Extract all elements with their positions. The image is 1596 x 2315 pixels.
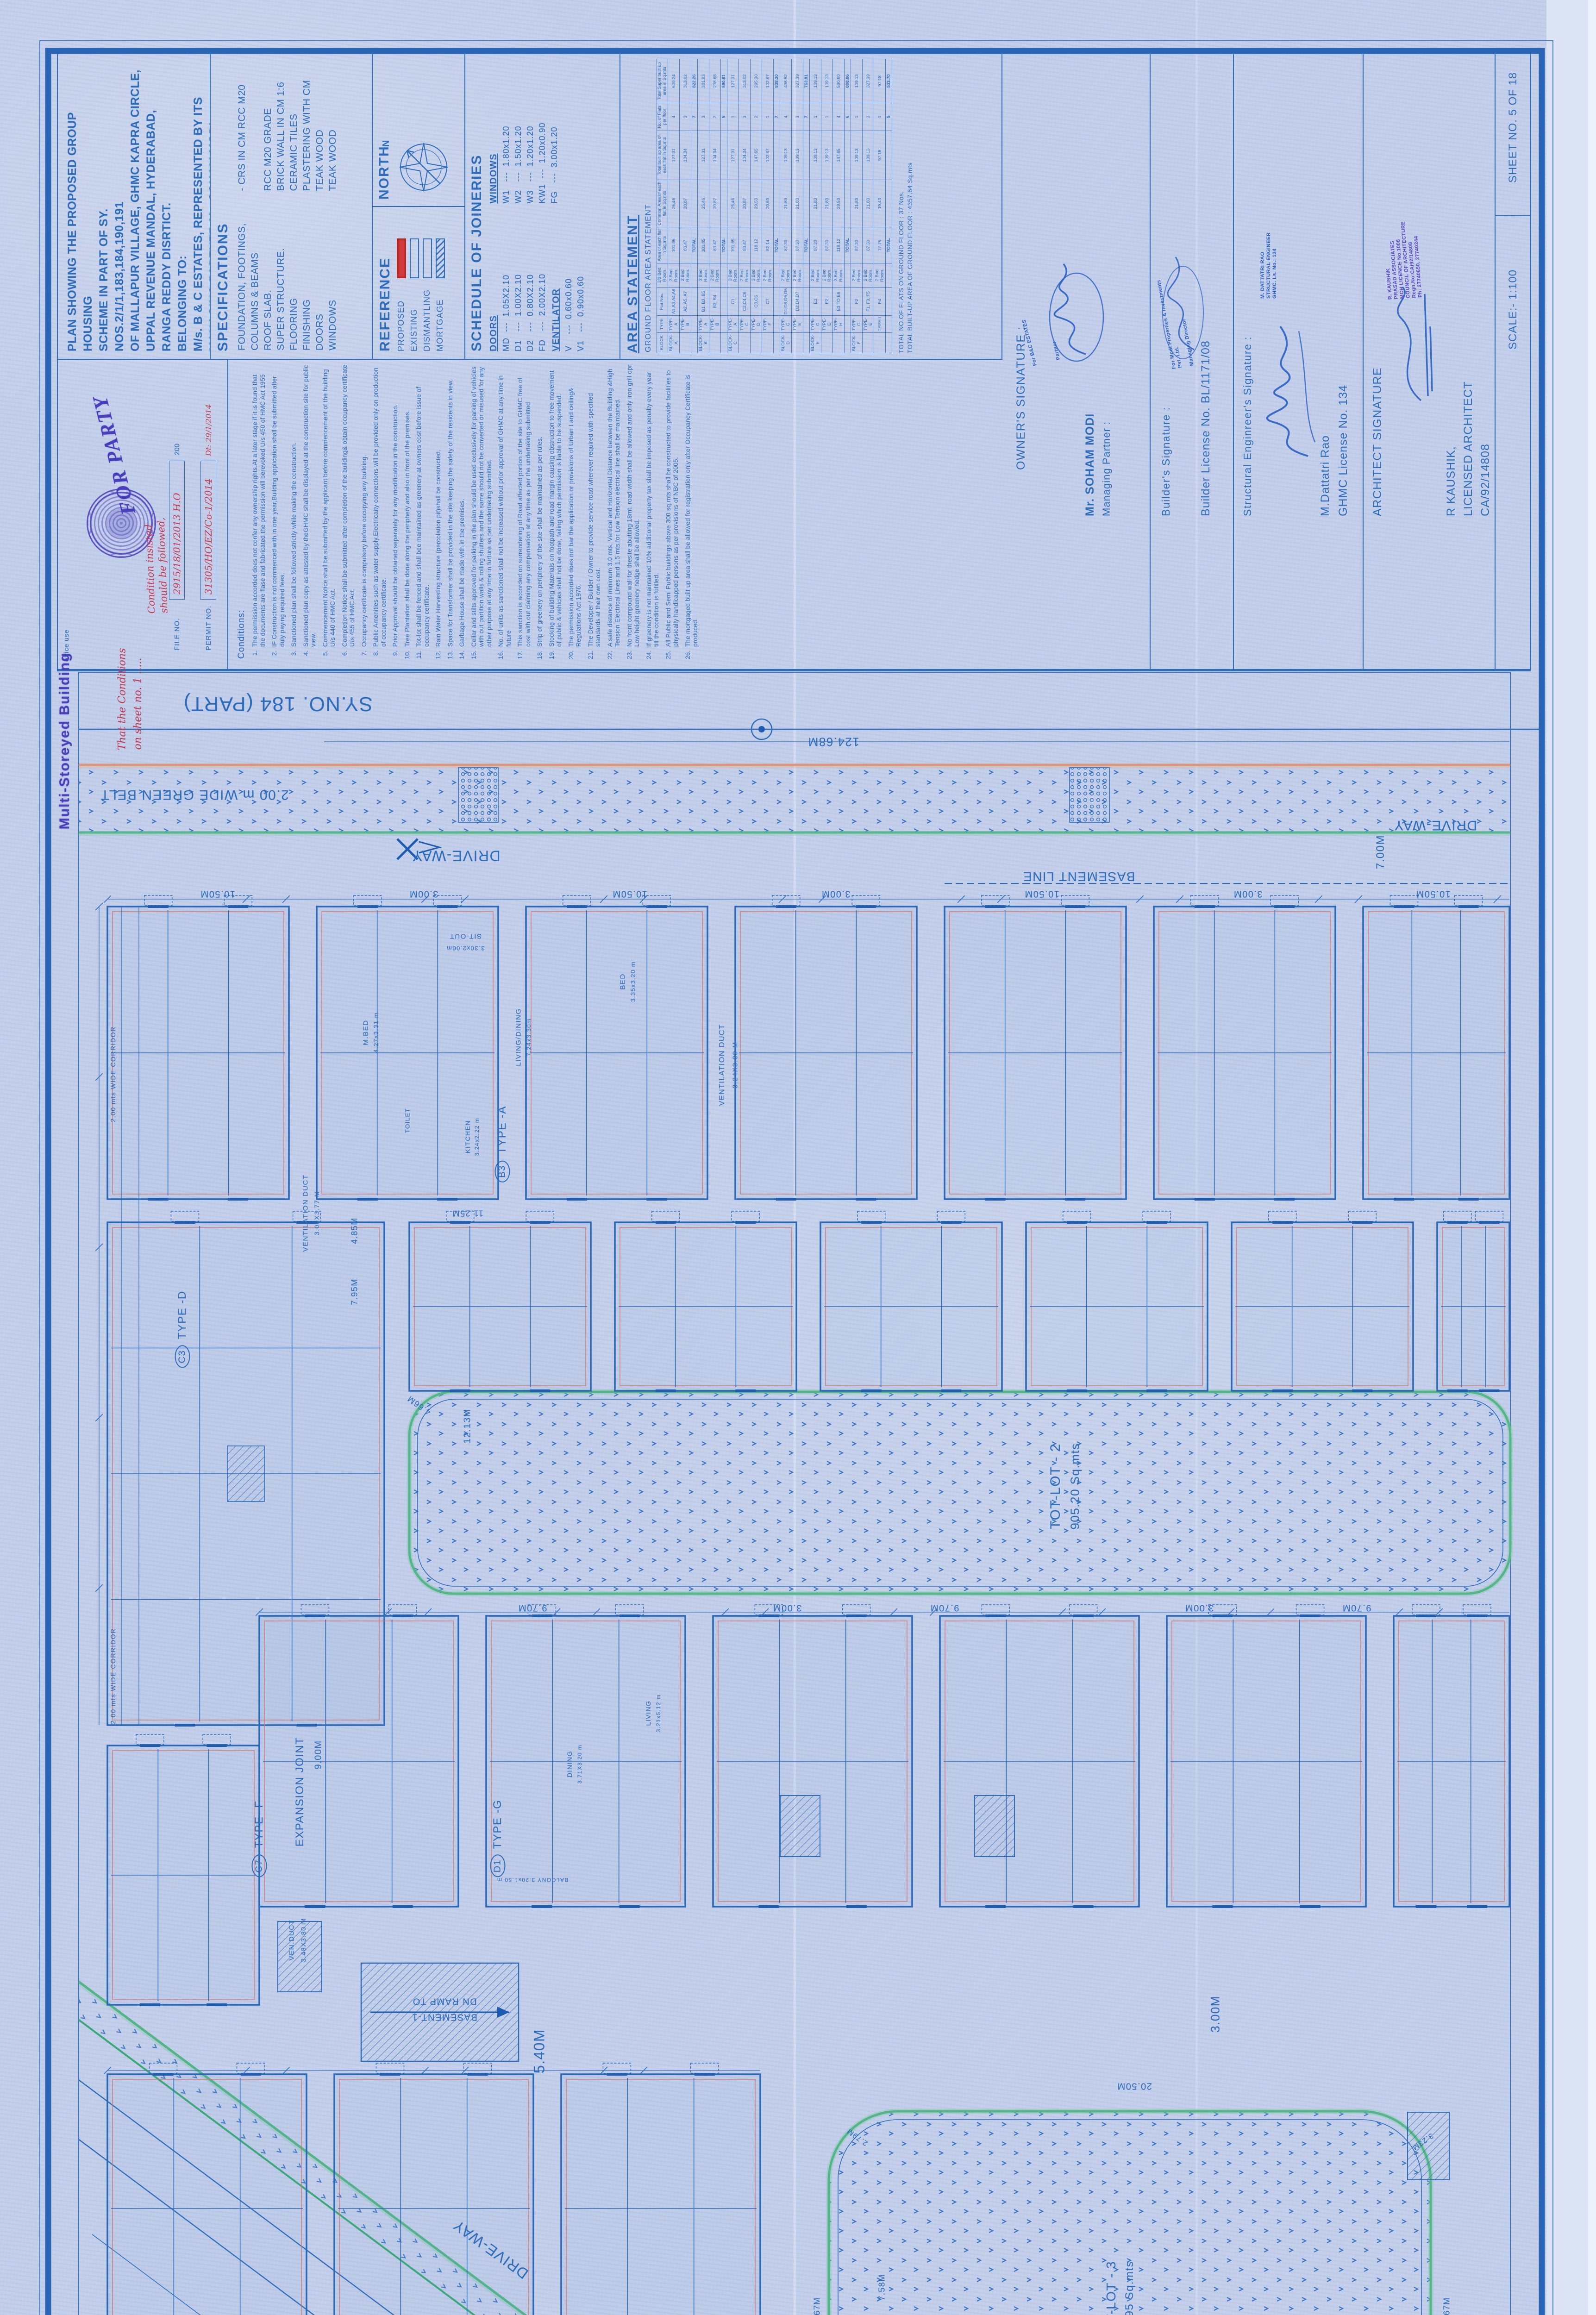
condition-number: 5. <box>322 647 337 663</box>
area-note: TOTAL BUILT-UP AREA OF GROUND FLOOR : 43… <box>906 56 914 353</box>
joinery-item: D1 --- 1.00X2.10 <box>513 204 523 352</box>
condition-text: Strip of greenery on periphery of the si… <box>536 437 544 647</box>
condition-item: 12.Rain Water Harvesting structure (perc… <box>435 364 443 663</box>
file-no-print: 200 <box>173 444 181 455</box>
area-cell: 102.67 <box>762 131 774 180</box>
specifications-panel: SPECIFICATIONS FOUNDATION, FOOTINGS,- CR… <box>211 52 373 359</box>
condition-number: 12. <box>435 647 443 663</box>
area-cell: TYPE-E <box>792 316 803 333</box>
area-cell: 109.13 <box>810 59 821 103</box>
area-cell: E1 <box>810 287 821 316</box>
area-cell: 3 <box>680 103 691 131</box>
area-cell <box>774 131 780 180</box>
condition-text: A safe distance of minimum 3.0 mts. Vert… <box>607 364 622 647</box>
tot-lot-3 <box>829 2111 1431 2315</box>
title-line: OF MALLAPUR VILLAGE, GHMC KAPRA CIRCLE, <box>127 56 143 351</box>
area-cell: 3 <box>863 103 874 131</box>
stamp-line: GHMC. Ls. No.: 134 <box>1272 232 1278 299</box>
apartment-block <box>713 1605 912 1907</box>
area-cell: TOTAL <box>845 227 851 263</box>
area-cell: 3 <box>739 103 751 131</box>
apartment-block <box>1232 1211 1413 1391</box>
condition-item: 5.Commencement Notice shall be submitted… <box>322 364 337 663</box>
permit-no-label: PERMIT NO. <box>205 600 213 651</box>
area-row: TOTAL5590.61 <box>721 59 727 353</box>
condition-number: 17. <box>517 647 532 663</box>
area-cell: D2,D4,D7 <box>792 287 803 316</box>
area-cell: 2 Bed Room. <box>863 263 874 287</box>
area-col-header: Flat Nos. <box>657 287 668 316</box>
apartment-block <box>107 895 289 1199</box>
area-col-header: Total Super built up area in Sq.mts <box>657 59 668 103</box>
north-cell: NORTH N <box>373 52 464 207</box>
area-cell: 822.26 <box>691 59 698 103</box>
area-cell: TYPE-D <box>751 316 762 333</box>
joinery-item: D2 --- 0.80X2.10 <box>526 204 535 352</box>
condition-number: 19. <box>548 647 563 663</box>
conditions-cell: Conditions: 1.The permission accorded do… <box>228 360 1002 669</box>
conditions-list: 1.The permission accorded does not confe… <box>251 364 700 663</box>
area-cell: 7 <box>803 103 810 131</box>
condition-number: 4. <box>302 647 318 663</box>
condition-text: Sanctioned plan copy as attested by theG… <box>302 364 318 647</box>
area-cell: 1 <box>874 103 886 131</box>
condition-text: The Developer / Builder / Owner to provi… <box>587 364 602 647</box>
area-cell <box>803 131 810 180</box>
apartment-block <box>526 895 707 1199</box>
spec-item: SUPER STRUCTURE. <box>275 192 288 351</box>
area-cell <box>886 333 892 353</box>
area-cell: TOTAL <box>803 227 810 263</box>
area-cell: 2 Bed Room. <box>874 263 886 287</box>
spec-row: DOORSTEAK WOOD <box>313 62 326 351</box>
owner-signature-cell: OWNER'S SIGNATURE : For B&C ESTATES Part… <box>1002 51 1151 669</box>
apartment-block <box>486 1605 685 1907</box>
condition-number: 24. <box>645 647 661 663</box>
approval-cell: office use FOR PARTY Condition insisted … <box>58 360 228 669</box>
condition-number: 15. <box>470 647 494 663</box>
area-cell <box>845 316 851 333</box>
apartment-block <box>107 2063 307 2315</box>
condition-item: 3.Sanctioned plan shall be followed stri… <box>290 364 298 663</box>
spec-row: WINDOWSTEAK WOOD <box>326 62 339 351</box>
area-cell <box>739 333 751 353</box>
spec-value: CERAMIC TILES <box>288 62 300 192</box>
area-cell: 87.30 <box>780 227 792 263</box>
condition-item: 8.Public Amenities such as water supply,… <box>372 364 388 663</box>
condition-text: No front compound wall for thesite abutt… <box>626 364 641 647</box>
area-col-header: BLOCK <box>657 333 668 353</box>
joinery-item: FD --- 2.00X2.10 <box>538 204 547 352</box>
file-no-value: 2915/18/01/2013 H.O <box>169 461 185 600</box>
area-cell: 20.87 <box>709 180 721 227</box>
joinery-item: V1 --- 0.90x0.60 <box>576 204 586 352</box>
area-col-header: Area of each flat in Sq.mts <box>657 227 668 263</box>
area-cell: 509.24 <box>668 59 680 103</box>
area-cell: TOTAL <box>886 227 892 263</box>
condition-number: 18. <box>536 647 544 663</box>
area-cell: 1 <box>821 103 833 131</box>
area-row: BLOCK-FTYPE-GF22 Bed Room.87.3021.83109.… <box>851 59 863 353</box>
area-cell: B1, B3, B5 <box>698 287 709 316</box>
area-cell: 5 <box>721 103 727 131</box>
area-cell: 21.83 <box>863 180 874 227</box>
area-cell <box>774 333 780 353</box>
area-cell: 2 Bed Room. <box>739 263 751 287</box>
area-cell: 3 <box>792 103 803 131</box>
condition-item: 26.The mortgaged built up area shall be … <box>684 364 700 663</box>
apartment-block <box>1394 1605 1509 1907</box>
area-cell: 101.85 <box>698 227 709 263</box>
condition-text: Cellar and stilts approved for parking i… <box>470 364 494 647</box>
area-cell: 1 <box>762 103 774 131</box>
area-cell: 109.13 <box>851 59 863 103</box>
legend-swatch <box>436 238 445 278</box>
windows-title: WINDOWS <box>488 56 499 204</box>
area-cell: 4 <box>833 103 845 131</box>
area-cell: 3 Bed Room. <box>698 263 709 287</box>
area-col-header: Total built up area of each flat in Sq.m… <box>657 131 668 180</box>
area-cell: TYPE-B <box>709 316 721 333</box>
joinery-item: W2 --- 1.50x1.20 <box>513 56 523 204</box>
basement-ramp <box>361 1963 519 2061</box>
condition-text: This sanction is accorded on surrenderin… <box>517 364 532 647</box>
condition-number: 25. <box>665 647 680 663</box>
tot-lot-2 <box>409 1392 1510 1594</box>
apartment-block <box>259 1605 458 1907</box>
area-col-header: Common Area of each flat in Sq.mts <box>657 180 668 227</box>
schedule-windows-col: WINDOWS W1 --- 1.80x1.20W2 --- 1.50x1.20… <box>488 56 588 204</box>
builder-signature-cell: Builder's Signature : For Modi Propertie… <box>1151 51 1234 669</box>
area-cell: 109.13 <box>863 131 874 180</box>
area-cell: 2 Bed Room. <box>709 263 721 287</box>
area-cell: 1 <box>810 103 821 131</box>
condition-number: 7. <box>361 647 369 663</box>
area-cell: TYPE-A <box>668 316 680 333</box>
area-cell: 21.83 <box>821 180 833 227</box>
area-cell <box>845 263 851 287</box>
area-cell: 29.53 <box>751 180 762 227</box>
area-cell: 21.83 <box>780 180 792 227</box>
area-cell <box>774 287 780 316</box>
area-cell: C2,C4,C6 <box>739 287 751 316</box>
permit-no-row: PERMIT NO. 31305/HO/EZ/Co-1/2014 Dt: 29/… <box>200 404 216 651</box>
condition-number: 1. <box>251 647 267 663</box>
title-line: UPPAL REVENUE MANDAL, HYDERABAD, <box>143 56 159 351</box>
apartment-block <box>317 895 498 1199</box>
condition-text: IF Construction is not commenced with in… <box>271 364 286 647</box>
area-cell: 4 <box>668 103 680 131</box>
area-cell <box>721 131 727 180</box>
area-cell: 25.46 <box>727 180 739 227</box>
area-row: TYPE-ED2,D4,D72 Bed Room.87.3021.83109.1… <box>792 59 803 353</box>
area-cell: 101.85 <box>668 227 680 263</box>
area-cell: 1 <box>851 103 863 131</box>
condition-number: 20. <box>568 647 583 663</box>
condition-text: If greenery is not maintained 10% additi… <box>645 364 661 647</box>
legend-row: MORTGAGE <box>435 207 445 351</box>
area-cell <box>774 316 780 333</box>
area-cell <box>709 333 721 353</box>
area-cell: 104.34 <box>680 131 691 180</box>
area-cell: 19.43 <box>874 180 886 227</box>
area-col-header: TYPE <box>657 316 668 333</box>
architect-signature-label: ARCHITECT SIGNATURE <box>1371 51 1384 516</box>
area-cell: 147.65 <box>833 131 845 180</box>
spec-value: TEAK WOOD <box>313 62 326 192</box>
area-cell: 97.18 <box>874 131 886 180</box>
area-statement-notes: TOTAL NO.OF FLATS ON GROUND FLOOR : 37 N… <box>897 56 914 353</box>
condition-text: Space for Transformer shall be provided … <box>447 379 455 647</box>
area-row: TOTAL7763.91 <box>803 59 810 353</box>
area-statement-panel: AREA STATEMENT GROUND FLOOR AREA STATEME… <box>620 52 1002 359</box>
area-cell <box>821 333 833 353</box>
conditions-title: Conditions: <box>237 364 247 659</box>
condition-number: 21. <box>587 647 602 663</box>
condition-item: 22.A safe distance of minimum 3.0 mts. V… <box>607 364 622 663</box>
area-cell: BLOCK-C <box>727 333 739 353</box>
area-cell: 82.14 <box>762 227 774 263</box>
spec-row: FOUNDATION, FOOTINGS,- CRS IN CM RCC M20 <box>236 62 249 351</box>
joinery-item: FG --- 3.00x1.20 <box>550 56 559 204</box>
condition-text: Completion Notice shall be submitted aft… <box>341 364 357 647</box>
area-cell <box>774 263 780 287</box>
architect-signature-cell: ARCHITECT SIGNATURE R. KAUSHIKPRASAD ASS… <box>1364 51 1496 669</box>
condition-item: 17.This sanction is accorded on surrende… <box>517 364 532 663</box>
north-label: NORTH <box>376 52 392 200</box>
area-cell: TYPE-A <box>698 316 709 333</box>
condition-text: The permission accorded does not confer … <box>251 364 267 647</box>
schedule-header: SCHEDULE OF JOINERIES <box>469 56 485 351</box>
condition-item: 2.IF Construction is not commenced with … <box>271 364 286 663</box>
area-cell: 25.46 <box>668 180 680 227</box>
architect-signature-icon <box>1384 280 1435 410</box>
area-header-row: BLOCKTYPEFlat Nos.2/3 Bed Room.Area of e… <box>657 59 668 353</box>
legend-swatch <box>397 238 406 278</box>
scale-label: SCALE:- 1:100 <box>1496 215 1530 350</box>
area-cell: 109.13 <box>821 59 833 103</box>
area-cell <box>774 180 780 227</box>
area-cell: 327.39 <box>792 59 803 103</box>
area-cell: 20.87 <box>680 180 691 227</box>
area-cell: 20.53 <box>762 180 774 227</box>
spec-item: COLUMNS & BEAMS <box>249 192 262 351</box>
spec-value: TEAK WOOD <box>326 62 339 192</box>
area-cell <box>721 287 727 316</box>
architect-stamp: R. KAUSHIKPRASAD ASSOCIATESMCH LICENCE N… <box>1382 220 1423 300</box>
apartment-block <box>940 1605 1139 1907</box>
area-cell: 87.30 <box>851 227 863 263</box>
area-cell: 1 <box>727 103 739 131</box>
area-cell: TYPE-G <box>851 316 863 333</box>
area-cell: 21.83 <box>851 180 863 227</box>
area-cell: TOTAL <box>774 227 780 263</box>
area-cell: BLOCK-F <box>851 333 863 353</box>
area-cell: 25.46 <box>698 180 709 227</box>
condition-number: 3. <box>290 647 298 663</box>
specifications-header: SPECIFICATIONS <box>215 56 231 351</box>
legend-label: EXISTING <box>409 282 419 351</box>
area-cell: 533.70 <box>886 59 892 103</box>
area-cell <box>845 180 851 227</box>
legend-label: PROPOSED <box>396 282 406 351</box>
area-cell: 436.52 <box>780 59 792 103</box>
area-cell: 102.67 <box>762 59 774 103</box>
area-cell: 2 <box>709 103 721 131</box>
file-no-label: FILE NO. <box>173 600 181 651</box>
area-row: TOTAL7838.30 <box>774 59 780 353</box>
area-cell <box>863 333 874 353</box>
area-cell: 77.75 <box>874 227 886 263</box>
area-row: TYPE-EF1, F3, F52 Bed Room.87.3021.83109… <box>863 59 874 353</box>
condition-item: 9.Prior Approval should be obtained sepa… <box>392 364 400 663</box>
area-cell <box>762 333 774 353</box>
condition-number: 6. <box>341 647 357 663</box>
condition-number: 13. <box>447 647 455 663</box>
condition-text: Tree Plantation shall be done along the … <box>404 410 412 647</box>
condition-number: 8. <box>372 647 388 663</box>
area-row: TYPE-CC2,C4,C62 Bed Room.83.4720.87104.3… <box>739 59 751 353</box>
condition-item: 24.If greenery is not maintained 10% add… <box>645 364 661 663</box>
spec-item: ROOF SLAB. <box>262 192 275 351</box>
condition-item: 20.The permission accorded does not bar … <box>568 364 583 663</box>
spec-value: RCC M20 GRADE <box>262 62 275 192</box>
area-cell: 87.30 <box>821 227 833 263</box>
area-cell: 127.31 <box>727 59 739 103</box>
condition-item: 14.Garbage House shall be made with in t… <box>458 364 466 663</box>
spec-row: COLUMNS & BEAMS <box>249 62 262 351</box>
area-cell <box>680 333 691 353</box>
area-cell <box>721 316 727 333</box>
spec-row: ROOF SLAB.RCC M20 GRADE <box>262 62 275 351</box>
scale-sheet-strip: SCALE:- 1:100 SHEET NO. 5 OF 18 <box>1496 51 1530 669</box>
architect-name: R KAUSHIK, <box>1445 51 1458 516</box>
area-cell: TYPE-G <box>810 316 821 333</box>
title-line: MANAGING PARTNER Mr. SOHAM MODI <box>206 56 211 351</box>
area-cell <box>691 263 698 287</box>
area-row: BLOCK-DTYPE-GD1,D3,D5,D62 Bed Room.87.30… <box>780 59 792 353</box>
area-cell: 104.34 <box>739 131 751 180</box>
condition-text: Occupancy certificate is compulsory befo… <box>361 455 369 647</box>
title-line: M/s. B & C ESTATES, REPRESENTED BY ITS <box>190 56 206 351</box>
reference-legend: PROPOSEDEXISTINGDISMANTLINGMORTGAGE <box>396 207 445 351</box>
area-row: TYPE-FC72 Bed Room.82.1420.53102.671102.… <box>762 59 774 353</box>
area-cell: A2, A5, A7 <box>680 287 691 316</box>
area-cell <box>803 263 810 287</box>
area-cell: 2 <box>751 103 762 131</box>
area-cell: BLOCK-A <box>668 333 680 353</box>
dimension-line <box>256 1608 1509 1616</box>
condition-text: No. of units as sanctioned shall not be … <box>497 364 513 647</box>
area-statement-header: AREA STATEMENT <box>625 56 641 353</box>
owner-signature-label: OWNER'S SIGNATURE : <box>1014 51 1028 470</box>
north-letter: N <box>381 140 392 147</box>
area-cell: 590.60 <box>833 59 845 103</box>
area-cell: TYPE-C <box>739 316 751 333</box>
office-use-label: office use <box>63 629 70 662</box>
area-cell <box>886 131 892 180</box>
area-cell <box>886 263 892 287</box>
spec-value: - CRS IN CM RCC M20 <box>236 62 249 192</box>
area-cell <box>803 180 810 227</box>
condition-item: 6.Completion Notice shall be submitted a… <box>341 364 357 663</box>
condition-number: 26. <box>684 647 700 663</box>
spec-item: DOORS <box>313 192 326 351</box>
area-cell: 83.47 <box>709 227 721 263</box>
structural-signature-icon <box>1252 313 1322 470</box>
area-cell: 295.30 <box>751 59 762 103</box>
title-block-band: office use FOR PARTY Condition insisted … <box>57 53 1531 671</box>
schedule-doors-col: DOORS MD --- 1.05X2.10D1 --- 1.00X2.10D2… <box>488 204 588 352</box>
area-row: TYPE-IF42 Bed Room.77.7519.4397.18197.18 <box>874 59 886 353</box>
spec-row: SUPER STRUCTURE.BRICK WALL IN CM 1:6 <box>275 62 288 351</box>
condition-text: Commencement Notice shall be submitted b… <box>322 364 337 647</box>
specifications-table: FOUNDATION, FOOTINGS,- CRS IN CM RCC M20… <box>236 62 339 351</box>
area-cell: 127.31 <box>727 131 739 180</box>
handwritten-note: Condition insisted should be followed, <box>142 517 170 614</box>
condition-item: 18.Strip of greenery on periphery of the… <box>536 364 544 663</box>
area-cell: BLOCK-B <box>698 333 709 353</box>
joinery-item: V --- 0.60x0.60 <box>564 204 574 352</box>
area-cell: F1, F3, F5 <box>863 287 874 316</box>
condition-number: 2. <box>271 647 286 663</box>
area-cell <box>803 316 810 333</box>
apartment-block <box>615 1211 796 1391</box>
area-statement-table: BLOCKTYPEFlat Nos.2/3 Bed Room.Area of e… <box>657 59 892 353</box>
joinery-item: W3 --- 1.20x1.20 <box>526 56 535 204</box>
area-row: TOTAL7822.26 <box>691 59 698 353</box>
area-cell: 118.12 <box>751 227 762 263</box>
area-cell: BLOCK-D <box>780 333 792 353</box>
area-cell <box>886 287 892 316</box>
area-cell: 109.13 <box>810 131 821 180</box>
area-cell <box>845 333 851 353</box>
apartment-block <box>945 895 1126 1199</box>
area-cell: 83.47 <box>739 227 751 263</box>
area-cell <box>751 333 762 353</box>
area-cell <box>845 131 851 180</box>
area-cell: 101.85 <box>727 227 739 263</box>
area-cell: E3 TO E6 <box>833 287 845 316</box>
area-cell: TYPE-I <box>874 316 886 333</box>
legend-row: DISMANTLING <box>422 207 432 351</box>
area-cell: 2 Bed Room. <box>821 263 833 287</box>
apartment-block <box>107 1734 259 2005</box>
area-cell: 87.30 <box>863 227 874 263</box>
apartment-block <box>409 1211 591 1391</box>
reference-cell: REFERENCE PROPOSEDEXISTINGDISMANTLINGMOR… <box>373 207 464 359</box>
area-cell: B2, B4 <box>709 287 721 316</box>
project-title: PLAN SHOWING THE PROPOSED GROUP HOUSINGS… <box>58 52 211 359</box>
apartment-block <box>1363 895 1509 1199</box>
area-cell: 3 Bed Room. <box>727 263 739 287</box>
spec-value <box>249 62 262 192</box>
area-cell: 127.31 <box>698 131 709 180</box>
structural-signature-cell: Structural Enginreer's Signature : M. DA… <box>1234 51 1364 669</box>
titleblock-column: PLAN SHOWING THE PROPOSED GROUP HOUSINGS… <box>58 52 1002 359</box>
area-cell: 83.47 <box>680 227 691 263</box>
title-line: BELONGING TO: <box>175 56 190 351</box>
area-row: BLOCK-BTYPE-AB1, B3, B53 Bed Room.101.85… <box>698 59 709 353</box>
condition-text: Rain Water Harvesting structure (percola… <box>435 450 443 647</box>
area-cell: TOTAL <box>721 227 727 263</box>
area-cell <box>721 263 727 287</box>
area-cell: 327.39 <box>863 59 874 103</box>
condition-number: 11. <box>415 647 431 663</box>
area-cell: 109.13 <box>792 131 803 180</box>
condition-text: Public Amenities such as water supply,El… <box>372 364 388 647</box>
area-cell: 20.87 <box>739 180 751 227</box>
